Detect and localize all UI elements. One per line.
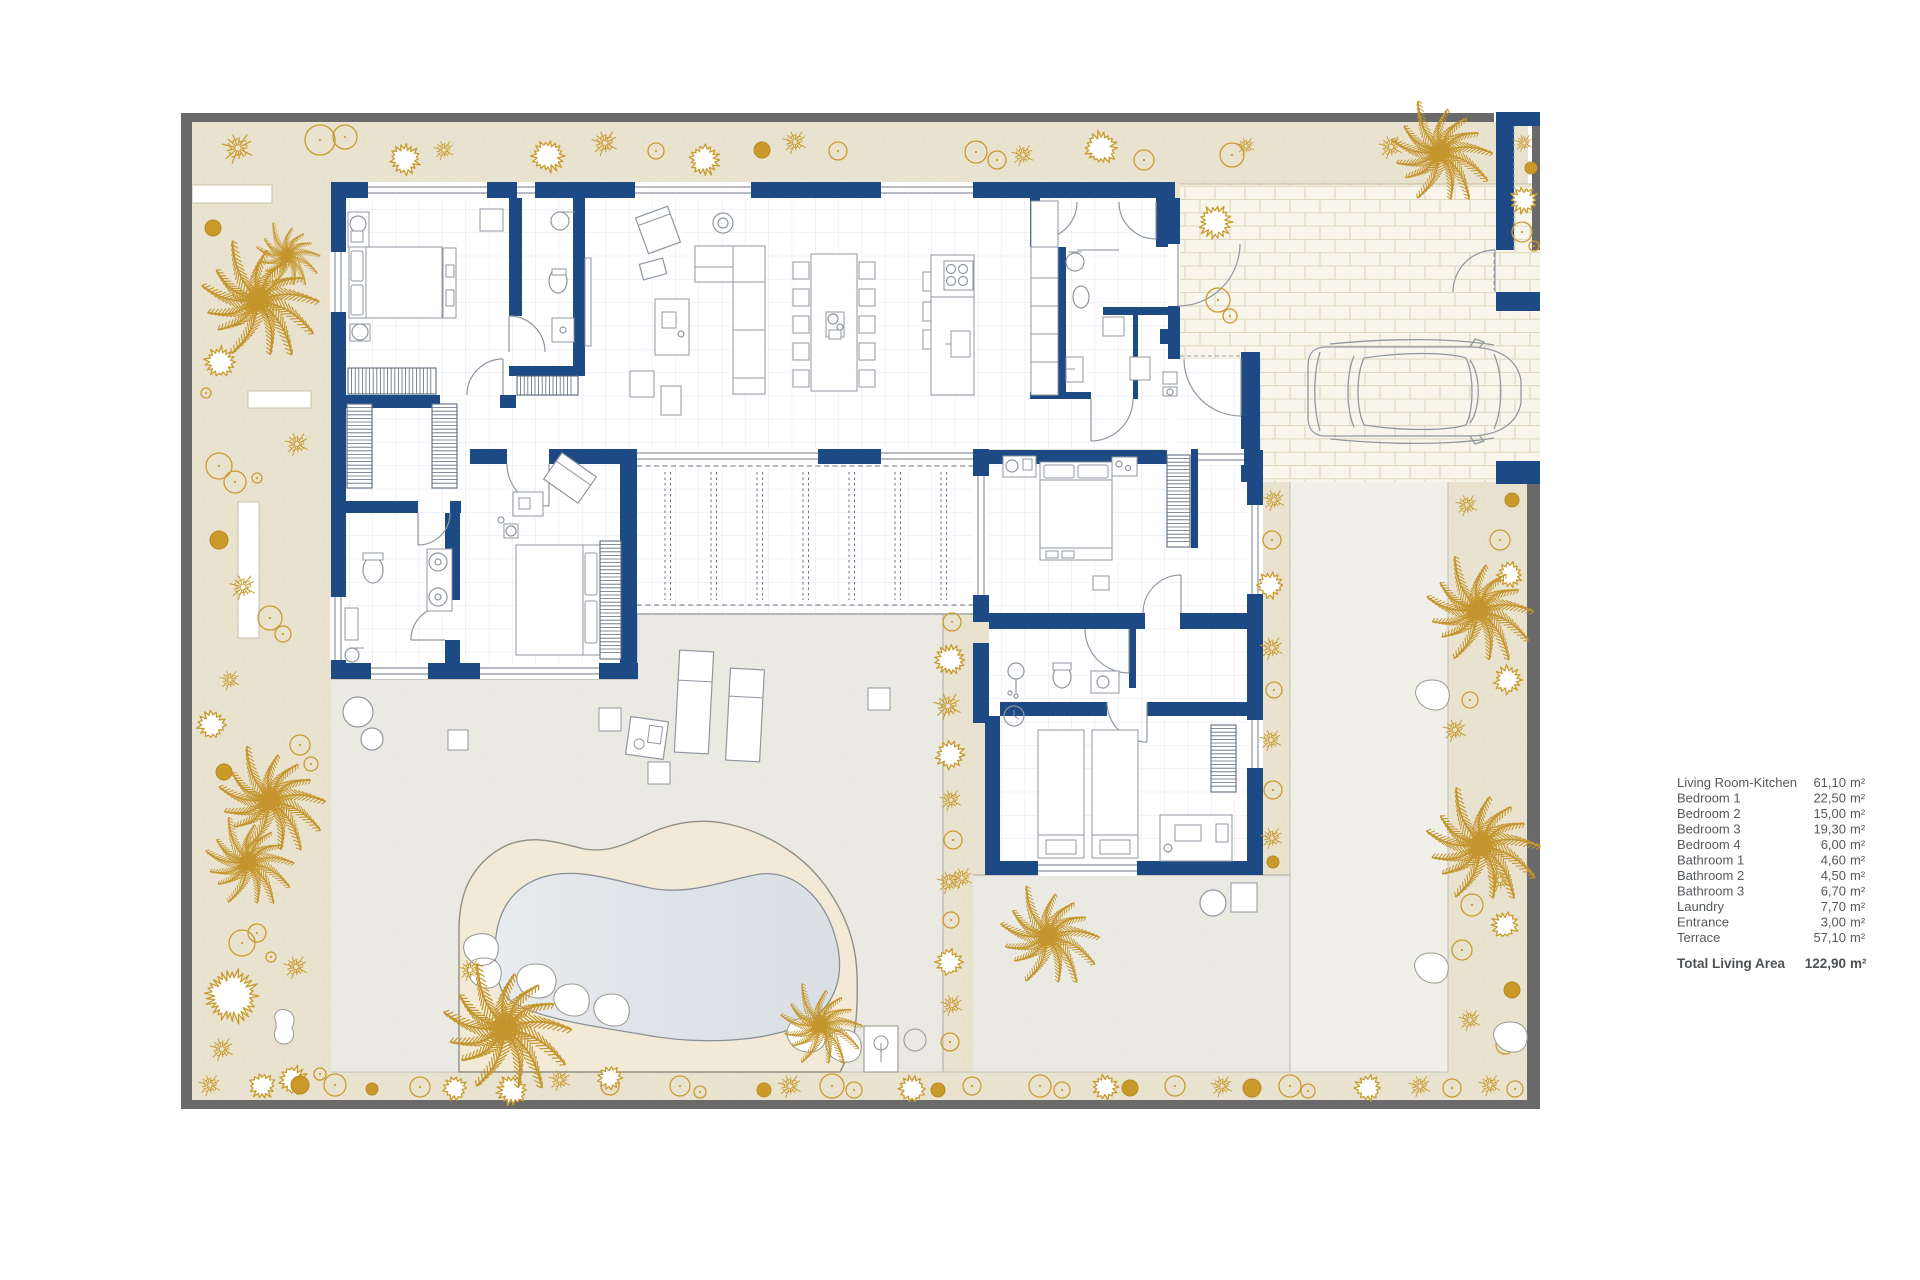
- svg-text:Bathroom 2: Bathroom 2: [1677, 868, 1744, 883]
- svg-text:m²: m²: [1850, 852, 1866, 867]
- svg-text:m²: m²: [1850, 837, 1866, 852]
- svg-text:122,90: 122,90: [1805, 956, 1846, 971]
- svg-text:Bedroom 1: Bedroom 1: [1677, 790, 1741, 805]
- svg-text:m²: m²: [1850, 790, 1866, 805]
- svg-text:Bedroom 3: Bedroom 3: [1677, 821, 1741, 836]
- svg-text:m²: m²: [1850, 914, 1866, 929]
- svg-text:Bedroom 2: Bedroom 2: [1677, 806, 1741, 821]
- svg-text:7,70: 7,70: [1821, 899, 1846, 914]
- svg-text:4,50: 4,50: [1821, 868, 1846, 883]
- svg-text:Bathroom 3: Bathroom 3: [1677, 883, 1744, 898]
- svg-text:m²: m²: [1850, 806, 1866, 821]
- svg-text:4,60: 4,60: [1821, 852, 1846, 867]
- svg-text:6,70: 6,70: [1821, 883, 1846, 898]
- svg-text:Living Room-Kitchen: Living Room-Kitchen: [1677, 775, 1797, 790]
- svg-text:15,00: 15,00: [1813, 806, 1846, 821]
- svg-text:57,10: 57,10: [1813, 930, 1846, 945]
- svg-text:m²: m²: [1850, 883, 1866, 898]
- svg-text:3,00: 3,00: [1821, 914, 1846, 929]
- svg-text:m²: m²: [1850, 930, 1866, 945]
- svg-text:61,10: 61,10: [1813, 775, 1846, 790]
- svg-text:Entrance: Entrance: [1677, 914, 1729, 929]
- svg-text:m²: m²: [1850, 775, 1866, 790]
- svg-text:Bedroom 4: Bedroom 4: [1677, 837, 1741, 852]
- svg-text:m²: m²: [1850, 899, 1866, 914]
- svg-text:Total Living Area: Total Living Area: [1677, 956, 1786, 971]
- svg-text:19,30: 19,30: [1813, 821, 1846, 836]
- svg-text:Terrace: Terrace: [1677, 930, 1720, 945]
- svg-text:Bathroom 1: Bathroom 1: [1677, 852, 1744, 867]
- svg-text:Laundry: Laundry: [1677, 899, 1724, 914]
- svg-text:6,00: 6,00: [1821, 837, 1846, 852]
- svg-text:m²: m²: [1850, 956, 1867, 971]
- svg-text:22,50: 22,50: [1813, 790, 1846, 805]
- svg-text:m²: m²: [1850, 868, 1866, 883]
- svg-text:m²: m²: [1850, 821, 1866, 836]
